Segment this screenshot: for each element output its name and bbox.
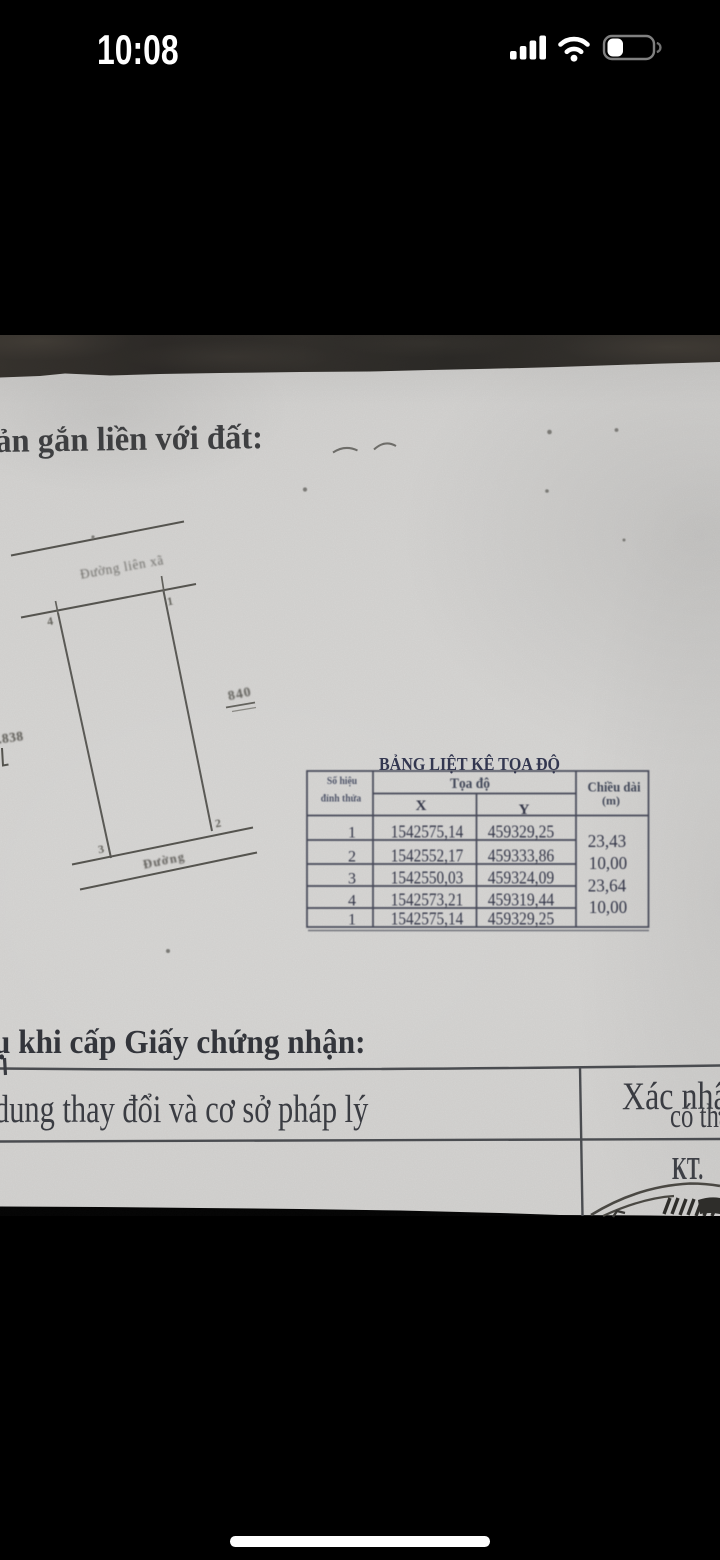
- svg-text:10,00: 10,00: [589, 853, 628, 874]
- svg-text:đỉnh thửa: đỉnh thửa: [321, 793, 361, 804]
- svg-text:1542575,14: 1542575,14: [391, 908, 464, 928]
- svg-text:459324,09: 459324,09: [488, 867, 555, 887]
- svg-text:1: 1: [348, 825, 356, 842]
- svg-text:23,43: 23,43: [588, 831, 627, 852]
- svg-text:Chiều dài: Chiều dài: [587, 779, 640, 794]
- svg-text:1542552,17: 1542552,17: [391, 845, 464, 865]
- svg-text:X: X: [416, 798, 427, 814]
- svg-text:10,00: 10,00: [589, 897, 628, 918]
- svg-text:1542575,14: 1542575,14: [391, 821, 464, 841]
- svg-text:1542573,21: 1542573,21: [391, 889, 464, 909]
- svg-text:(m): (m): [602, 794, 620, 808]
- svg-text:459319,44: 459319,44: [488, 889, 555, 909]
- svg-text:459333,86: 459333,86: [488, 845, 555, 865]
- svg-text:1: 1: [348, 912, 356, 929]
- svg-text:459329,25: 459329,25: [488, 821, 555, 841]
- svg-text:23,64: 23,64: [588, 875, 627, 896]
- svg-text:Số hiệu: Số hiệu: [327, 776, 358, 787]
- svg-text:Tọa độ: Tọa độ: [450, 777, 490, 793]
- svg-text:4: 4: [348, 893, 356, 910]
- svg-text:1542550,03: 1542550,03: [391, 867, 464, 887]
- svg-text:2: 2: [348, 849, 356, 866]
- svg-text:459329,25: 459329,25: [488, 908, 555, 928]
- svg-text:Y: Y: [519, 802, 530, 818]
- svg-text:3: 3: [348, 871, 356, 888]
